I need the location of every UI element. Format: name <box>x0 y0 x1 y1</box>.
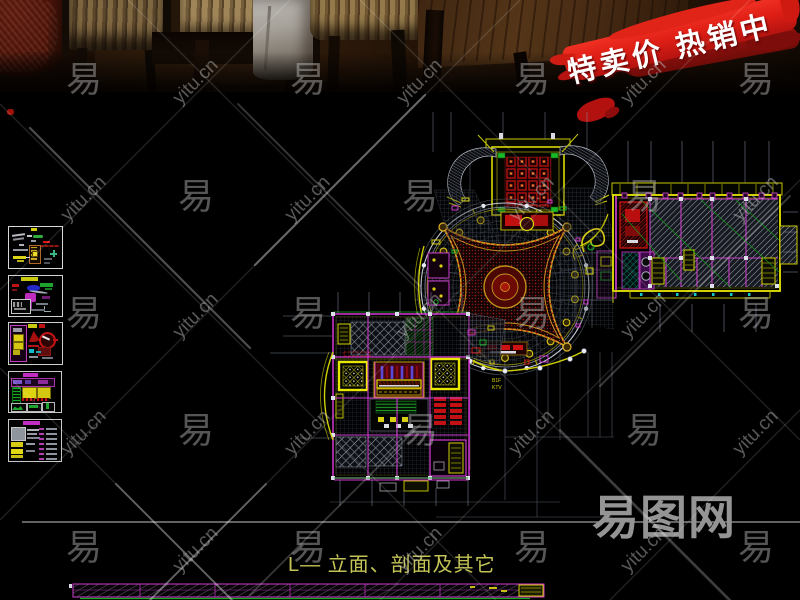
svg-text:易: 易 <box>738 293 774 334</box>
svg-text:易: 易 <box>626 176 662 217</box>
svg-text:易: 易 <box>66 527 102 568</box>
svg-text:yitu.cn: yitu.cn <box>281 406 335 460</box>
svg-text:易: 易 <box>514 293 550 334</box>
svg-text:易: 易 <box>290 527 326 568</box>
svg-text:易: 易 <box>402 410 438 451</box>
svg-text:易: 易 <box>402 176 438 217</box>
svg-text:易: 易 <box>178 176 214 217</box>
svg-text:易: 易 <box>738 527 774 568</box>
svg-text:yitu.cn: yitu.cn <box>393 289 447 343</box>
svg-text:易: 易 <box>738 59 774 100</box>
svg-text:yitu.cn: yitu.cn <box>729 406 783 460</box>
svg-text:yitu.cn: yitu.cn <box>729 172 783 226</box>
svg-text:yitu.cn: yitu.cn <box>57 172 111 226</box>
svg-text:易: 易 <box>626 410 662 451</box>
svg-text:yitu.cn: yitu.cn <box>393 523 447 577</box>
svg-text:yitu.cn: yitu.cn <box>169 523 223 577</box>
svg-text:易: 易 <box>290 293 326 334</box>
svg-text:yitu.cn: yitu.cn <box>169 289 223 343</box>
svg-text:易: 易 <box>178 410 214 451</box>
svg-text:易: 易 <box>290 59 326 100</box>
svg-text:yitu.cn: yitu.cn <box>169 55 223 109</box>
svg-text:易: 易 <box>514 527 550 568</box>
svg-text:易: 易 <box>514 59 550 100</box>
svg-text:易: 易 <box>66 59 102 100</box>
svg-text:yitu.cn: yitu.cn <box>617 523 671 577</box>
svg-text:yitu.cn: yitu.cn <box>617 55 671 109</box>
svg-text:yitu.cn: yitu.cn <box>617 289 671 343</box>
svg-text:易: 易 <box>66 293 102 334</box>
svg-text:yitu.cn: yitu.cn <box>505 406 559 460</box>
